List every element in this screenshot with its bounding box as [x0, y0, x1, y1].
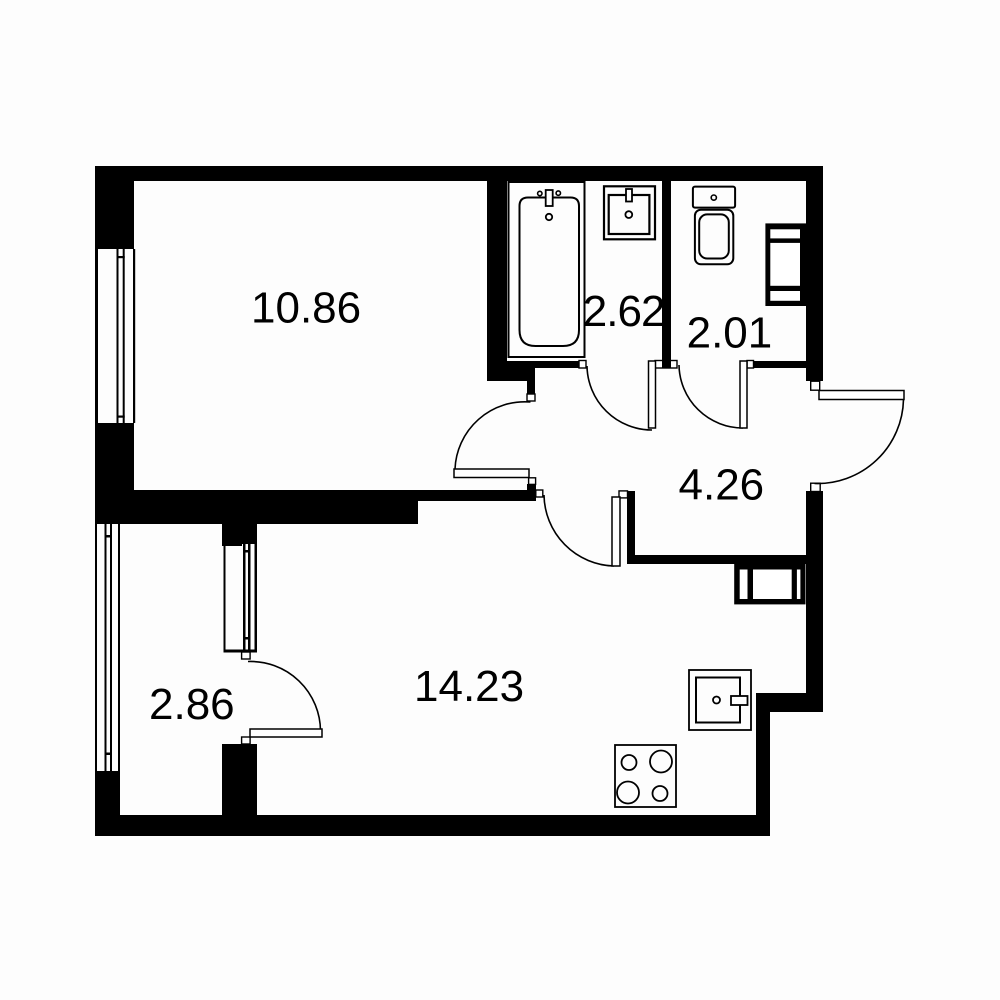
svg-text:4.26: 4.26 — [679, 461, 765, 510]
svg-text:10.86: 10.86 — [251, 284, 361, 333]
svg-text:14.23: 14.23 — [414, 662, 524, 711]
svg-text:2.01: 2.01 — [687, 308, 773, 357]
svg-text:2.86: 2.86 — [149, 680, 235, 729]
svg-text:2.62: 2.62 — [583, 287, 665, 336]
